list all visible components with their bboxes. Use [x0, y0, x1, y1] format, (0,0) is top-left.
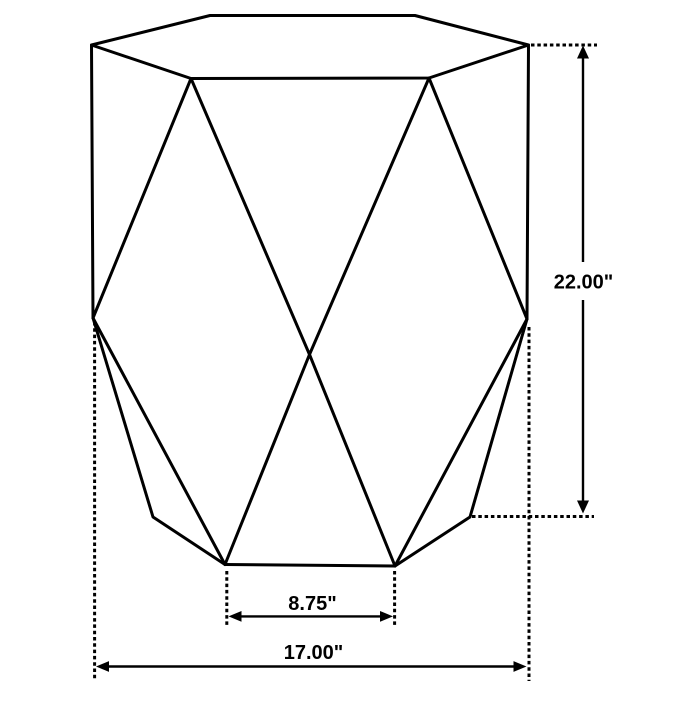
svg-text:8.75": 8.75" [288, 593, 336, 615]
svg-text:22.00": 22.00" [554, 272, 614, 294]
svg-text:17.00": 17.00" [284, 642, 344, 664]
